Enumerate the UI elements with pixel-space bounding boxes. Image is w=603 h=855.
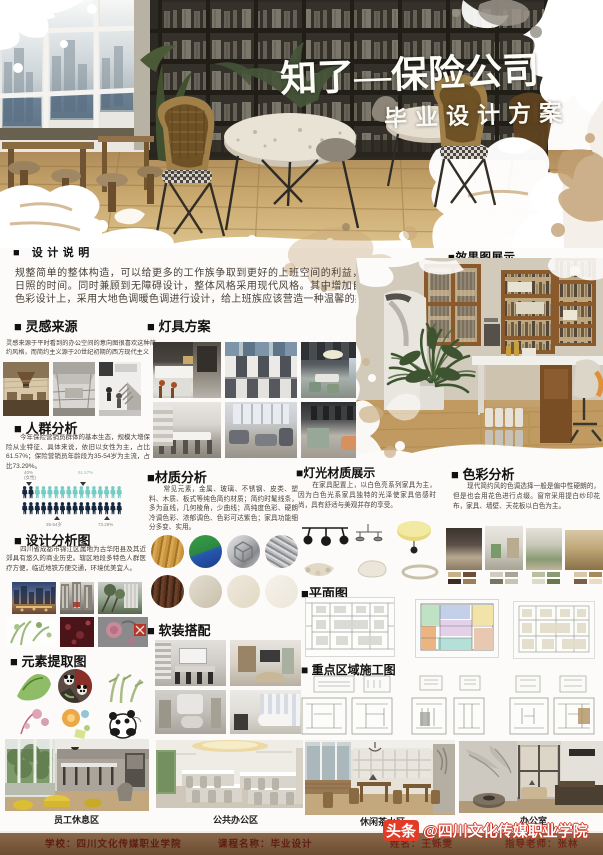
svg-text:61.57%: 61.57% (78, 470, 93, 475)
svg-text:35-54岁: 35-54岁 (46, 521, 62, 528)
svg-text:40%(女性): 40%(女性) (24, 470, 36, 481)
svg-text:73.29%: 73.29% (98, 522, 113, 527)
